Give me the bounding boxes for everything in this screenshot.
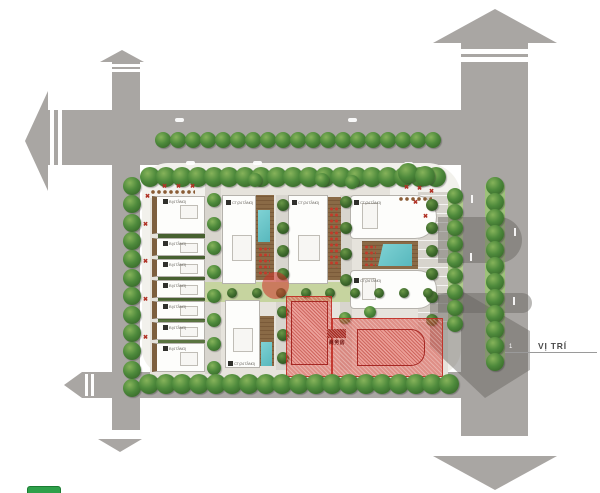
badge-label: B (4 TẦNG) [169, 199, 186, 204]
white-quadrant-s [140, 398, 461, 493]
tree-icon [486, 353, 504, 371]
rowhouse-roof-detail [180, 352, 198, 366]
tree-icon [207, 289, 221, 303]
location-label: VỊ TRÍ [538, 341, 567, 351]
tree-icon [395, 132, 411, 148]
tree-icon [207, 361, 221, 375]
tree-icon [426, 268, 438, 280]
tree-icon [350, 288, 360, 298]
rowhouse-unit: B (4 TẦNG) [152, 322, 205, 340]
tree-icon [340, 196, 352, 208]
tree-icon [207, 265, 221, 279]
tree-icon [425, 132, 441, 148]
tree-icon [340, 222, 352, 234]
red-x-marker-icon: ✖ [176, 184, 181, 190]
red-area-badge [327, 329, 346, 338]
building-badge: CT (24 TẦNG) [226, 199, 253, 205]
badge-label: CT (24 TẦNG) [360, 200, 381, 205]
pool-main [378, 244, 412, 266]
tree-icon [207, 193, 221, 207]
pool-furniture [258, 246, 270, 276]
tree-icon [350, 132, 366, 148]
badge-icon [163, 262, 168, 267]
terrace-furniture [329, 206, 340, 268]
tree-icon [207, 337, 221, 351]
arrow-down-large-icon [433, 456, 557, 490]
pool-furniture [364, 244, 376, 266]
road-marker [348, 118, 357, 122]
road-stripe [112, 64, 140, 67]
tree-icon [207, 217, 221, 231]
tree-icon [365, 132, 381, 148]
red-x-marker-icon: ✖ [429, 189, 434, 195]
road-stripe [461, 49, 528, 54]
tree-icon [426, 245, 438, 257]
tree-icon [123, 214, 141, 232]
badge-icon [163, 199, 168, 204]
tree-icon [207, 241, 221, 255]
tree-icon [252, 288, 262, 298]
red-x-marker-icon: ✖ [190, 184, 195, 190]
badge-icon [354, 278, 359, 283]
white-quadrant-n [140, 0, 461, 110]
site-plan: B (4 TẦNG)B (4 TẦNG)B (4 TẦNG)B (4 TẦNG)… [0, 0, 600, 493]
pool-ct3 [261, 342, 272, 366]
tree-icon [215, 132, 231, 148]
building-badge: CT (24 TẦNG) [354, 277, 381, 283]
tree-icon [290, 132, 306, 148]
tree-icon [345, 175, 359, 189]
arrow-up-large-icon [433, 9, 557, 43]
badge-label: CT (24 TẦNG) [232, 200, 253, 205]
tree-icon [305, 132, 321, 148]
tree-icon [320, 132, 336, 148]
tree-icon [227, 288, 237, 298]
tree-icon [277, 245, 289, 257]
badge-label: B (4 TẦNG) [169, 241, 186, 246]
arrow-up-small-icon [100, 50, 144, 62]
badge-icon [228, 361, 233, 366]
road-stripe [112, 69, 140, 72]
road-stripe [461, 446, 528, 451]
badge-icon [292, 200, 297, 205]
tree-icon [123, 306, 141, 324]
tree-icon [207, 313, 221, 327]
white-quadrant-sw [0, 402, 112, 493]
road-stripe [461, 438, 528, 443]
badge-icon [163, 304, 168, 309]
red-building-1 [291, 301, 328, 365]
tree-icon [415, 166, 435, 186]
badge-icon [163, 346, 168, 351]
road-stripe [112, 435, 140, 438]
badge-label: B (4 TẦNG) [169, 304, 186, 309]
tree-icon [447, 204, 463, 220]
tower-roof-detail [298, 235, 320, 261]
tree-icon [248, 173, 262, 187]
lamp-marker [514, 228, 516, 236]
building-badge: B (4 TẦNG) [163, 282, 186, 288]
tree-icon [185, 132, 201, 148]
red-area-label: 商务房 [325, 339, 349, 346]
legend-swatch [27, 486, 61, 493]
badge-icon [354, 200, 359, 205]
tree-icon [315, 173, 329, 187]
rowhouse-unit: B (4 TẦNG) [152, 196, 205, 234]
red-x-marker-icon: ✖ [162, 184, 167, 190]
tree-icon [374, 288, 384, 298]
tree-icon [335, 132, 351, 148]
tower-roof-detail [232, 235, 252, 261]
tree-icon [340, 248, 352, 260]
red-tree-blob [262, 272, 289, 299]
tree-icon [364, 306, 376, 318]
pool-ct1 [258, 210, 270, 242]
tree-icon [277, 199, 289, 211]
red-x-marker-icon: ✖ [145, 194, 150, 200]
tree-icon [426, 222, 438, 234]
rowhouse-unit: B (4 TẦNG) [152, 280, 205, 298]
lamp-marker [471, 195, 473, 203]
tree-icon [275, 132, 291, 148]
tree-icon [399, 288, 409, 298]
badge-icon [226, 200, 231, 205]
red-x-marker-icon: ✖ [423, 214, 428, 220]
road-marker [253, 161, 262, 165]
rowhouse-unit: B (4 TẦNG) [152, 238, 205, 256]
tree-icon [123, 361, 141, 379]
tree-icon [123, 324, 141, 342]
plaza-tables [150, 189, 195, 196]
road-marker [175, 118, 184, 122]
location-leader-line [505, 352, 597, 353]
location-marker: 1 [509, 344, 512, 350]
road-stripe [85, 374, 88, 396]
badge-icon [163, 325, 168, 330]
rowhouse-roof-detail [180, 205, 198, 219]
badge-label: CT (24 TẦNG) [298, 200, 319, 205]
tree-icon [447, 252, 463, 268]
building-badge: CT (24 TẦNG) [292, 199, 319, 205]
red-x-marker-icon: ✖ [143, 297, 148, 303]
building-badge: B (4 TẦNG) [163, 198, 186, 204]
tree-icon [340, 274, 352, 286]
tree-icon [426, 199, 438, 211]
badge-label: CT (24 TẦNG) [360, 278, 381, 283]
badge-label: CT (24 TẦNG) [234, 361, 255, 366]
road-stripe [50, 110, 54, 165]
road-stripe [112, 430, 140, 433]
badge-label: B (4 TẦNG) [169, 283, 186, 288]
building-badge: B (4 TẦNG) [163, 240, 186, 246]
tree-icon [410, 132, 426, 148]
tree-icon [245, 132, 261, 148]
badge-icon [163, 241, 168, 246]
rowhouse-unit: B (4 TẦNG) [152, 343, 205, 372]
tree-icon [200, 132, 216, 148]
tree-icon [230, 132, 246, 148]
red-x-marker-icon: ✖ [143, 335, 148, 341]
red-x-marker-icon: ✖ [404, 185, 409, 191]
white-quadrant-w [0, 165, 112, 372]
tower-core-detail [362, 203, 378, 229]
badge-label: B (4 TẦNG) [169, 325, 186, 330]
arrow-down-small-icon [98, 439, 142, 452]
building-badge: B (4 TẦNG) [163, 261, 186, 267]
red-x-marker-icon: ✖ [413, 200, 418, 206]
arrow-left-icon [25, 91, 48, 191]
tree-icon [123, 232, 141, 250]
tree-icon [447, 284, 463, 300]
rowhouse-unit: B (4 TẦNG) [152, 301, 205, 319]
tree-icon [447, 316, 463, 332]
badge-label: B (4 TẦNG) [169, 346, 186, 351]
road-stripe [58, 110, 62, 165]
road-marker [186, 161, 195, 165]
red-building-2 [357, 329, 425, 366]
white-quadrant-nw [0, 0, 112, 110]
tree-icon [439, 374, 459, 394]
tree-icon [423, 288, 433, 298]
tree-icon [447, 188, 463, 204]
tree-icon [447, 220, 463, 236]
tower-roof-detail [233, 328, 253, 352]
tree-icon [447, 268, 463, 284]
tree-icon [447, 300, 463, 316]
red-x-marker-icon: ✖ [143, 259, 148, 265]
building-badge: B (4 TẦNG) [163, 345, 186, 351]
badge-icon [163, 283, 168, 288]
red-x-marker-icon: ✖ [417, 186, 422, 192]
tree-icon [170, 132, 186, 148]
building-badge: CT (24 TẦNG) [228, 360, 255, 366]
road-stripe [91, 374, 94, 396]
tree-icon [260, 132, 276, 148]
lamp-marker [513, 297, 515, 305]
tree-icon [123, 269, 141, 287]
building-badge: B (4 TẦNG) [163, 303, 186, 309]
road-stripe [461, 57, 528, 62]
rowhouse-unit: B (4 TẦNG) [152, 259, 205, 277]
lamp-marker [470, 253, 472, 261]
arrow-left-small-icon [64, 372, 82, 398]
red-x-marker-icon: ✖ [143, 222, 148, 228]
badge-label: B (4 TẦNG) [169, 262, 186, 267]
building-badge: B (4 TẦNG) [163, 324, 186, 330]
tree-icon [277, 222, 289, 234]
building-badge: CT (24 TẦNG) [354, 199, 381, 205]
tree-icon [155, 132, 171, 148]
tree-icon [447, 236, 463, 252]
tree-icon [380, 132, 396, 148]
tree-icon [123, 177, 141, 195]
